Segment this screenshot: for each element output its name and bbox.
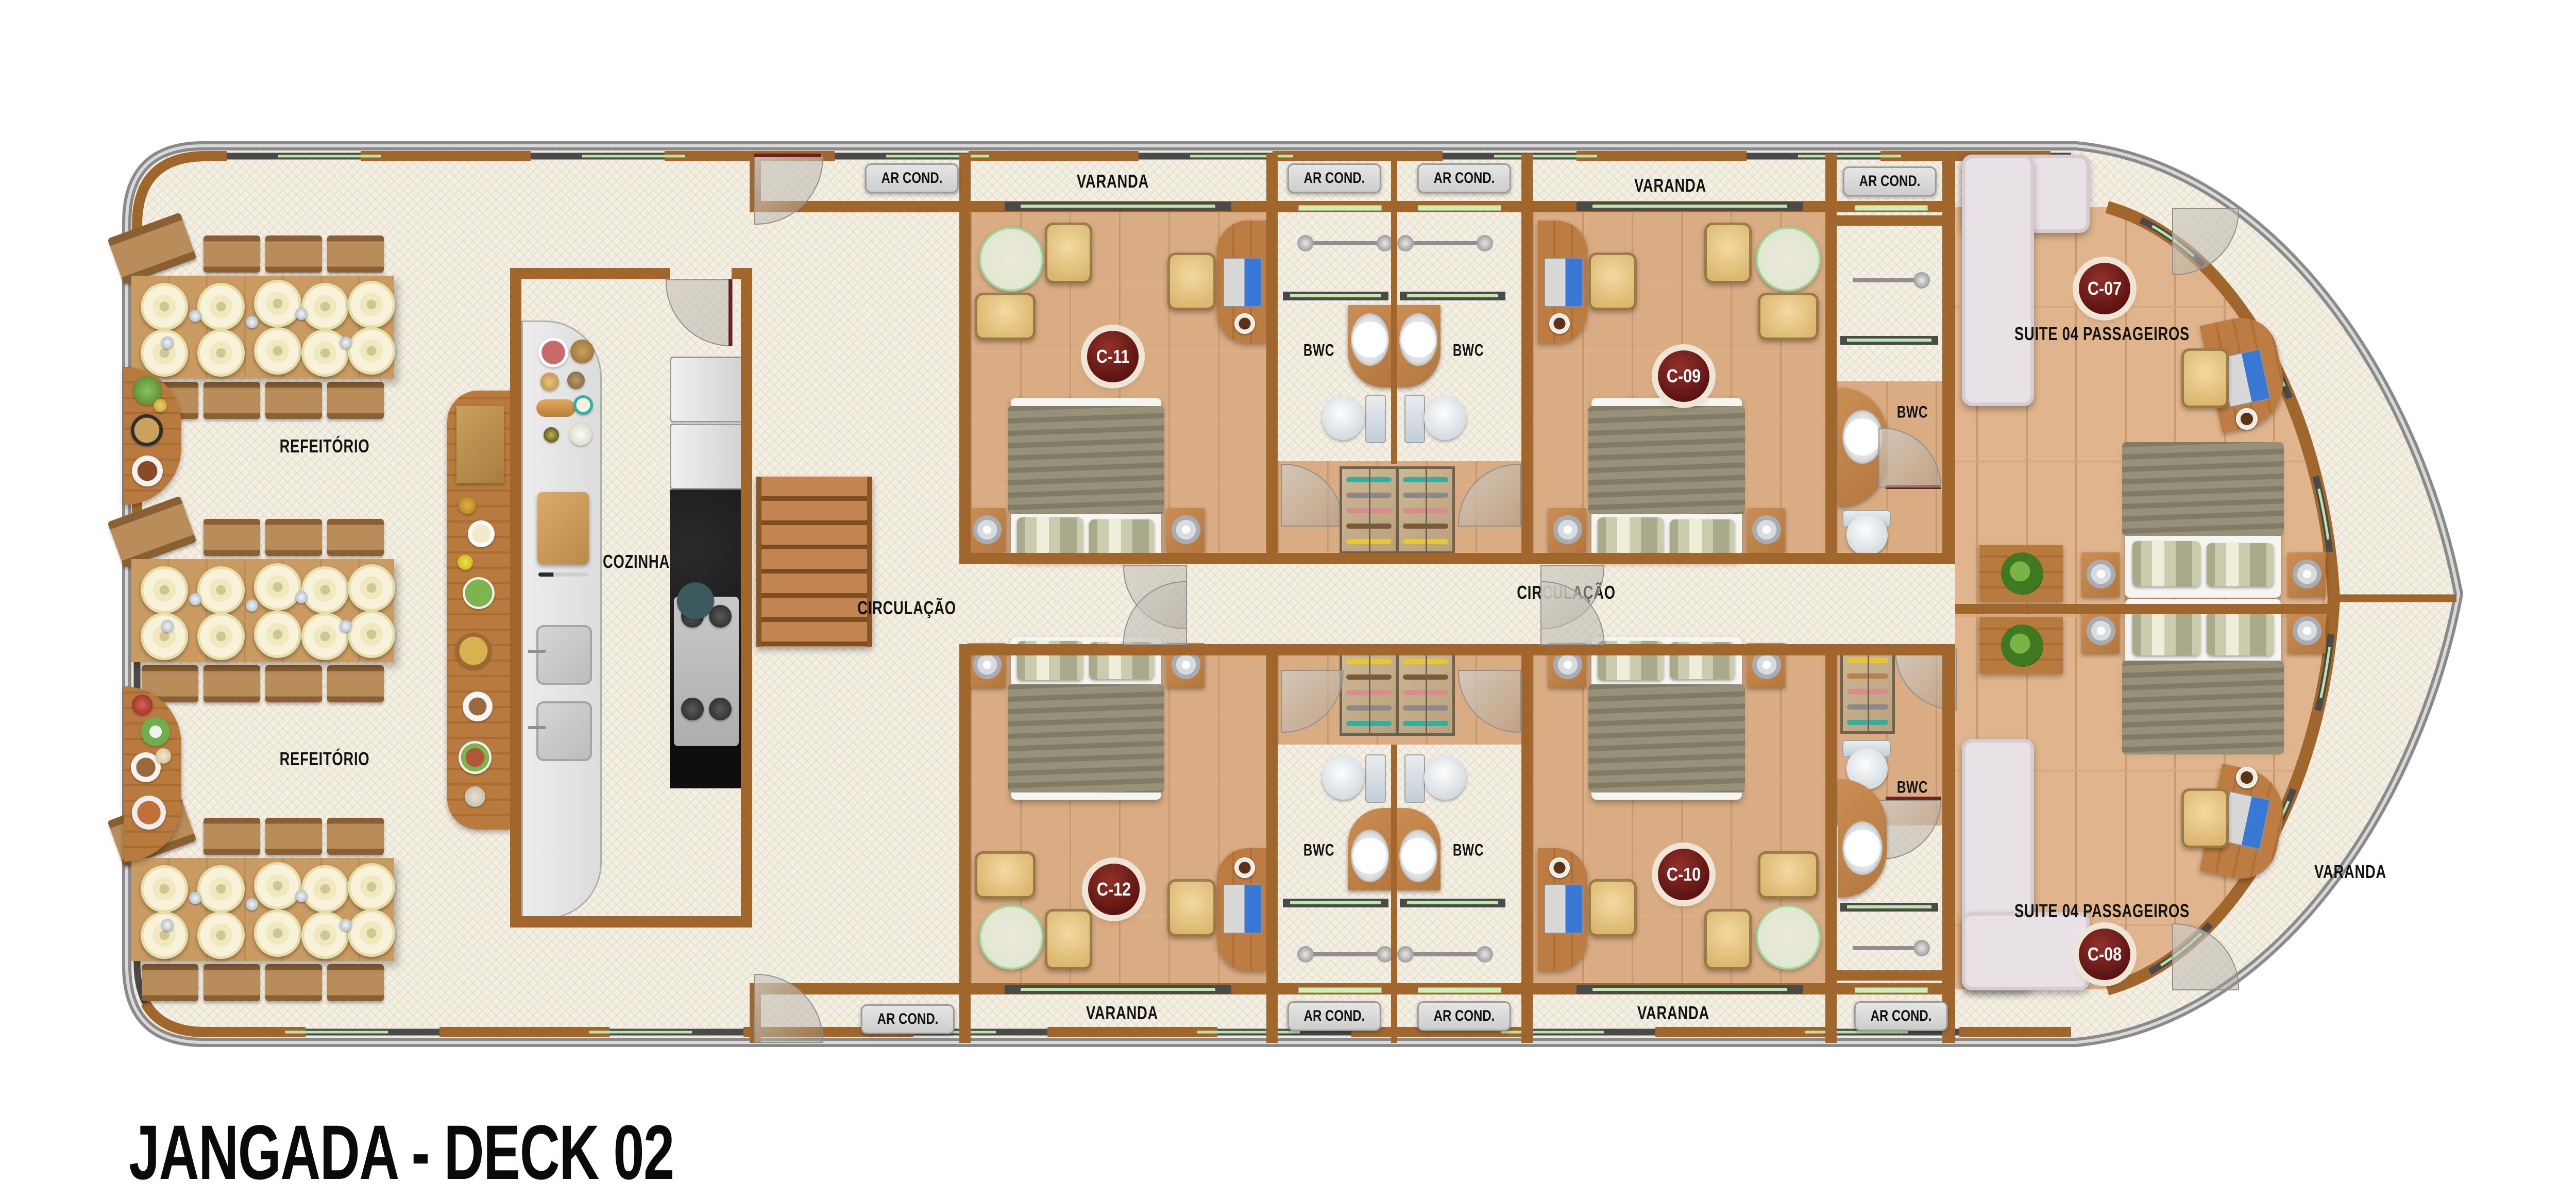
small-dish bbox=[154, 399, 167, 412]
bwc-label: BWC bbox=[1453, 341, 1484, 360]
bedside-lamp bbox=[2293, 616, 2321, 645]
place-setting bbox=[197, 613, 245, 660]
suite-bed bbox=[2125, 599, 2281, 749]
varanda-label: VARANDA bbox=[1634, 175, 1706, 196]
niche-window bbox=[1418, 987, 1501, 993]
burner bbox=[709, 698, 732, 720]
place-setting bbox=[348, 909, 395, 957]
sauce-dish bbox=[459, 497, 476, 514]
cabin-badge-c10: C-10 bbox=[1658, 849, 1709, 900]
glass bbox=[295, 890, 308, 902]
refeitorio-label: REFEITÓRIO bbox=[280, 435, 370, 457]
laptop bbox=[1223, 884, 1262, 934]
place-setting bbox=[254, 611, 301, 658]
place-setting bbox=[197, 283, 245, 330]
bedside-lamp bbox=[2087, 560, 2115, 588]
olives-dish bbox=[544, 427, 559, 443]
bathroom-sink bbox=[1399, 830, 1437, 882]
ar-cond-badge: AR COND. bbox=[1417, 1001, 1511, 1031]
glass bbox=[161, 336, 174, 349]
potatoes bbox=[570, 340, 594, 363]
toilet-bowl bbox=[1322, 755, 1364, 800]
bwc-label: BWC bbox=[1897, 778, 1928, 797]
bathroom-sink bbox=[1351, 313, 1389, 366]
nightstand bbox=[1548, 508, 1586, 552]
plate-dish bbox=[132, 456, 163, 486]
dining-chair bbox=[265, 235, 322, 273]
glass bbox=[189, 310, 201, 322]
suite-sofa bbox=[1962, 155, 2034, 406]
shower-towel-bar bbox=[1403, 952, 1486, 956]
wall-stub bbox=[959, 154, 971, 212]
bed-pillow bbox=[1017, 517, 1083, 557]
bedside-lamp bbox=[1752, 515, 1781, 544]
bed-pillow bbox=[2207, 612, 2274, 655]
wall bbox=[1942, 655, 1955, 983]
pasta-bowl bbox=[132, 796, 166, 830]
nightstand bbox=[2287, 609, 2326, 653]
place-setting bbox=[254, 563, 301, 611]
place-setting bbox=[141, 865, 188, 913]
niche-window bbox=[1855, 205, 1928, 211]
cabin-badge-c07: C-07 bbox=[2079, 263, 2130, 314]
ar-cond-badge: AR COND. bbox=[1843, 166, 1937, 196]
coffee-cup bbox=[2236, 408, 2258, 430]
wall-stub bbox=[1266, 985, 1278, 1043]
wall bbox=[1521, 212, 1533, 553]
shower-glass bbox=[1283, 899, 1388, 907]
cabin-window bbox=[1577, 202, 1803, 211]
cabin-chair bbox=[975, 293, 1036, 340]
coffee-cup bbox=[1234, 857, 1255, 878]
nightstand bbox=[2081, 552, 2120, 597]
cabin-table bbox=[979, 227, 1044, 292]
place-setting bbox=[348, 281, 395, 328]
bedside-lamp bbox=[973, 515, 1002, 544]
dining-table-2 bbox=[131, 559, 394, 662]
foyer-table bbox=[1979, 617, 2063, 674]
desk-chair bbox=[1588, 252, 1637, 310]
dining-chair bbox=[327, 665, 384, 702]
bed-pillow bbox=[2207, 543, 2274, 586]
bed-duvet bbox=[2122, 661, 2284, 754]
deck-floor-plan: REFEITÓRIO REFEITÓRIO COZINHA CIRCULAÇÃO bbox=[0, 0, 2576, 1197]
glass bbox=[246, 599, 258, 612]
bathroom-sink bbox=[1842, 821, 1883, 875]
shower-towel-bar bbox=[1303, 952, 1386, 956]
wall bbox=[1837, 970, 1942, 981]
bed-pillow bbox=[1089, 519, 1154, 557]
page-title: JANGADA - DECK 02 bbox=[129, 1108, 674, 1197]
glass bbox=[295, 308, 308, 320]
desk-chair bbox=[1167, 879, 1216, 937]
bedside-lamp bbox=[1172, 515, 1200, 544]
towel-bar-end bbox=[1297, 946, 1314, 963]
wall bbox=[1942, 212, 1955, 553]
wall-stub bbox=[959, 985, 971, 1043]
toilet-tank bbox=[1365, 395, 1386, 443]
cabin-chair bbox=[1704, 223, 1752, 283]
cutting-board bbox=[537, 492, 589, 564]
sandwich-board bbox=[456, 406, 504, 483]
wall bbox=[1825, 655, 1837, 983]
laptop bbox=[1544, 884, 1583, 934]
niche-window bbox=[1855, 987, 1928, 993]
place-setting bbox=[301, 566, 349, 614]
towel-bar-end bbox=[1397, 946, 1414, 963]
wall-corridor-bottom bbox=[959, 644, 1955, 655]
wall-stub bbox=[1825, 985, 1837, 1043]
wall bbox=[959, 212, 971, 553]
cabin-chair bbox=[1758, 851, 1819, 899]
toilet-bowl bbox=[1322, 396, 1364, 440]
kitchen-wall-left bbox=[510, 268, 521, 928]
wall bbox=[1266, 212, 1278, 553]
wall bbox=[1837, 215, 1942, 226]
shower-towel-bar bbox=[1853, 946, 1920, 950]
desk-chair bbox=[1167, 252, 1216, 310]
glass bbox=[340, 336, 352, 349]
cream-bowl bbox=[569, 423, 592, 446]
glass bbox=[161, 919, 174, 931]
place-setting bbox=[301, 912, 349, 959]
place-setting bbox=[141, 329, 188, 377]
shower-glass bbox=[1283, 292, 1388, 300]
lemon-dish bbox=[457, 554, 473, 570]
cabin-badge-c08: C-08 bbox=[2079, 929, 2130, 980]
cozinha-label: COZINHA bbox=[603, 551, 670, 572]
bed bbox=[1591, 637, 1742, 800]
meat-plate bbox=[459, 741, 492, 774]
frying-pan bbox=[677, 582, 714, 619]
glass bbox=[161, 620, 174, 632]
ar-cond-badge: AR COND. bbox=[865, 163, 959, 193]
shower-glass bbox=[1840, 336, 1938, 345]
dining-chair bbox=[327, 235, 384, 273]
cabin-chair bbox=[1045, 223, 1092, 283]
wall-stub bbox=[1391, 985, 1397, 1043]
mushrooms bbox=[567, 372, 585, 389]
dining-chair bbox=[265, 382, 322, 419]
glass bbox=[340, 620, 352, 632]
towel-bar-end bbox=[1397, 235, 1414, 251]
toilet-bowl bbox=[1424, 755, 1466, 800]
wall-stub bbox=[1521, 985, 1533, 1043]
towel-bar-end bbox=[1297, 235, 1314, 251]
bruschetta-board bbox=[455, 633, 492, 669]
dining-table-3 bbox=[131, 858, 394, 961]
place-setting bbox=[141, 912, 188, 959]
bedside-lamp bbox=[2293, 560, 2321, 588]
nightstand bbox=[2081, 609, 2120, 653]
bedside-lamp bbox=[1553, 515, 1582, 544]
place-setting bbox=[141, 566, 188, 614]
wardrobe bbox=[1396, 648, 1455, 736]
bed-duvet bbox=[1008, 684, 1164, 793]
cabin-chair bbox=[1758, 293, 1819, 340]
bed-duvet bbox=[2122, 442, 2284, 536]
kitchen-door-leaf bbox=[728, 279, 732, 346]
cabin-badge-c09: C-09 bbox=[1658, 350, 1709, 402]
bun bbox=[540, 373, 559, 391]
knife bbox=[538, 572, 588, 577]
cabin-window bbox=[1005, 985, 1231, 994]
stove bbox=[674, 597, 739, 746]
place-setting bbox=[254, 862, 301, 909]
suite-label: SUITE 04 PASSAGEIROS bbox=[2014, 323, 2190, 345]
buffet-table bbox=[447, 391, 511, 830]
place-setting bbox=[301, 283, 349, 330]
bed bbox=[1591, 398, 1742, 561]
desk-chair bbox=[2181, 788, 2229, 848]
toilet-bowl bbox=[1846, 514, 1888, 555]
wardrobe bbox=[1340, 648, 1398, 736]
potted-plant bbox=[2001, 625, 2043, 667]
wall-stub bbox=[1521, 154, 1533, 212]
niche-window bbox=[1418, 205, 1501, 211]
cabin-window bbox=[1005, 202, 1231, 211]
bed-pillow bbox=[2132, 541, 2200, 586]
sink-faucet bbox=[528, 650, 546, 653]
shower-towel-bar bbox=[1403, 241, 1486, 245]
kitchen-sink bbox=[536, 701, 592, 761]
foyer-table bbox=[1979, 545, 2063, 602]
kitchen-counter bbox=[521, 321, 602, 919]
fridge bbox=[670, 424, 745, 490]
greens-bowl bbox=[463, 577, 495, 609]
place-setting bbox=[197, 865, 245, 913]
bed-pillow bbox=[1670, 519, 1735, 557]
suite-sofa bbox=[1962, 912, 2090, 990]
toilet-tank bbox=[1404, 754, 1425, 803]
towel-bar-end bbox=[1477, 235, 1493, 251]
dining-chair bbox=[204, 818, 260, 855]
dining-chair bbox=[265, 964, 322, 1001]
stairs bbox=[756, 477, 872, 647]
place-setting bbox=[254, 327, 301, 375]
towel-bar-end bbox=[1913, 272, 1930, 289]
dining-chair bbox=[204, 235, 260, 273]
wall-corridor-top bbox=[959, 553, 1955, 564]
kitchen-wall-right bbox=[741, 268, 752, 928]
cabin-table bbox=[1756, 227, 1821, 292]
glass bbox=[189, 892, 201, 904]
suite-label: SUITE 04 PASSAGEIROS bbox=[2014, 900, 2190, 922]
place-setting bbox=[301, 613, 349, 660]
desk-chair bbox=[1588, 879, 1637, 937]
glass bbox=[295, 591, 308, 603]
shower-towel-bar bbox=[1853, 278, 1920, 282]
ar-cond-badge: AR COND. bbox=[1287, 163, 1381, 193]
cabin-window bbox=[1577, 985, 1803, 994]
place-setting bbox=[348, 327, 395, 375]
cabin-chair bbox=[1045, 909, 1092, 970]
dining-chair bbox=[327, 519, 384, 556]
bathroom-sink bbox=[1351, 830, 1389, 882]
toilet-bowl bbox=[1424, 396, 1466, 440]
wardrobe bbox=[1840, 648, 1895, 734]
coffee-cup bbox=[1549, 313, 1570, 334]
varanda-label: VARANDA bbox=[2314, 861, 2386, 883]
bed bbox=[1011, 637, 1161, 800]
bwc-label: BWC bbox=[1303, 341, 1334, 360]
cabin-badge-c11: C-11 bbox=[1087, 331, 1139, 382]
cabin-chair bbox=[1704, 909, 1752, 970]
dining-chair bbox=[204, 382, 260, 419]
wall bbox=[1266, 655, 1278, 983]
wall-suite-center bbox=[1955, 604, 2335, 614]
circulacao-label: CIRCULAÇÃO bbox=[857, 597, 956, 619]
glass bbox=[340, 919, 352, 931]
glass bbox=[246, 898, 258, 911]
nightstand bbox=[968, 508, 1006, 552]
nightstand bbox=[2287, 552, 2326, 597]
bed-duvet bbox=[1588, 406, 1745, 514]
wall bbox=[1391, 745, 1397, 983]
varanda-label: VARANDA bbox=[1637, 1002, 1709, 1024]
dining-chair bbox=[265, 519, 322, 556]
toilet-tank bbox=[1365, 754, 1386, 803]
bed bbox=[1011, 398, 1161, 561]
toilet-tank bbox=[1404, 395, 1425, 443]
nightstand bbox=[1747, 508, 1785, 552]
place-setting bbox=[254, 280, 301, 327]
bwc-label: BWC bbox=[1897, 403, 1928, 422]
cabin-badge-c12: C-12 bbox=[1088, 864, 1140, 915]
bed-duvet bbox=[1008, 406, 1164, 514]
place-setting bbox=[348, 611, 395, 658]
shower-glass bbox=[1400, 899, 1505, 907]
fridge bbox=[670, 357, 745, 423]
towel-bar-end bbox=[1477, 946, 1493, 963]
laptop bbox=[1223, 258, 1262, 307]
side-dish bbox=[465, 786, 485, 807]
coffee-cup bbox=[2236, 767, 2258, 788]
kitchen-wall-top bbox=[510, 268, 670, 279]
place-setting bbox=[301, 329, 349, 377]
wall bbox=[1391, 212, 1397, 464]
kitchen-wall-bottom bbox=[510, 916, 752, 928]
bed-duvet bbox=[1588, 684, 1745, 793]
dining-chair bbox=[265, 665, 322, 702]
cheese-plate bbox=[468, 520, 495, 547]
dining-chair bbox=[204, 665, 260, 702]
place-setting bbox=[254, 909, 301, 957]
herb-dish bbox=[141, 717, 170, 746]
niche-window bbox=[1298, 987, 1382, 993]
ar-cond-badge: AR COND. bbox=[1854, 1001, 1948, 1031]
deck-door-leaf bbox=[754, 154, 821, 157]
wall bbox=[1521, 655, 1533, 983]
toast-plate bbox=[463, 692, 493, 721]
laptop bbox=[1544, 258, 1583, 307]
towel-bar-end bbox=[1913, 940, 1930, 956]
place-setting bbox=[141, 283, 188, 330]
varanda-label: VARANDA bbox=[1086, 1002, 1158, 1024]
ar-cond-badge: AR COND. bbox=[1287, 1001, 1381, 1031]
glass bbox=[189, 593, 201, 605]
wall-stub bbox=[1942, 154, 1955, 212]
glass bbox=[246, 316, 258, 328]
wall-stub bbox=[1391, 154, 1397, 212]
dining-chair bbox=[265, 818, 322, 855]
ar-cond-badge: AR COND. bbox=[861, 1004, 955, 1034]
place-setting bbox=[348, 863, 395, 911]
place-setting bbox=[301, 865, 349, 913]
burner bbox=[681, 698, 704, 720]
berry-dish bbox=[132, 695, 152, 715]
wall bbox=[959, 655, 971, 983]
butter-dish bbox=[573, 395, 593, 415]
place-setting bbox=[197, 566, 245, 614]
place-setting bbox=[197, 329, 245, 377]
kitchen-sink bbox=[536, 625, 592, 685]
wardrobe bbox=[1396, 466, 1455, 554]
bwc-label: BWC bbox=[1303, 841, 1334, 860]
ground-meat bbox=[538, 338, 568, 367]
dining-chair bbox=[204, 519, 260, 556]
bathroom-sink bbox=[1842, 410, 1883, 464]
place-setting bbox=[348, 564, 395, 612]
dining-chair bbox=[327, 964, 384, 1001]
bedside-lamp bbox=[2087, 616, 2115, 645]
place-setting bbox=[197, 912, 245, 959]
bwc-label: BWC bbox=[1453, 841, 1484, 860]
ar-cond-badge: AR COND. bbox=[1417, 163, 1511, 193]
suite-bed bbox=[2125, 447, 2281, 598]
wardrobe bbox=[1340, 466, 1398, 554]
wall-stub bbox=[1825, 154, 1837, 212]
potted-plant bbox=[2001, 552, 2043, 595]
refeitorio-label: REFEITÓRIO bbox=[280, 748, 370, 770]
cabin-chair bbox=[975, 851, 1036, 899]
wall-stub bbox=[1266, 154, 1278, 212]
baguette bbox=[536, 399, 575, 417]
bed-pillow bbox=[1598, 517, 1664, 557]
place-setting bbox=[141, 613, 188, 660]
nightstand bbox=[1166, 508, 1205, 552]
coffee-cup bbox=[1549, 857, 1570, 878]
shower-towel-bar bbox=[1303, 241, 1386, 245]
dining-chair bbox=[327, 382, 384, 419]
dining-table-1 bbox=[131, 276, 394, 379]
bathroom-sink bbox=[1399, 313, 1437, 366]
coffee-cup bbox=[1234, 313, 1255, 334]
varanda-label: VARANDA bbox=[1077, 171, 1149, 192]
desk-chair bbox=[2181, 348, 2229, 408]
bed-pillow bbox=[2132, 610, 2200, 655]
niche-window bbox=[1298, 205, 1382, 211]
dining-chair bbox=[204, 964, 260, 1001]
cabin-table bbox=[979, 905, 1044, 970]
dining-chair bbox=[142, 964, 198, 1001]
sink-faucet bbox=[528, 726, 546, 729]
dining-chair bbox=[327, 818, 384, 855]
cabin-table bbox=[1756, 905, 1821, 970]
shower-glass bbox=[1400, 292, 1505, 300]
shower-glass bbox=[1840, 903, 1938, 912]
pan-dish bbox=[131, 414, 163, 446]
cheese-dish bbox=[156, 748, 171, 764]
wall bbox=[1825, 212, 1837, 553]
